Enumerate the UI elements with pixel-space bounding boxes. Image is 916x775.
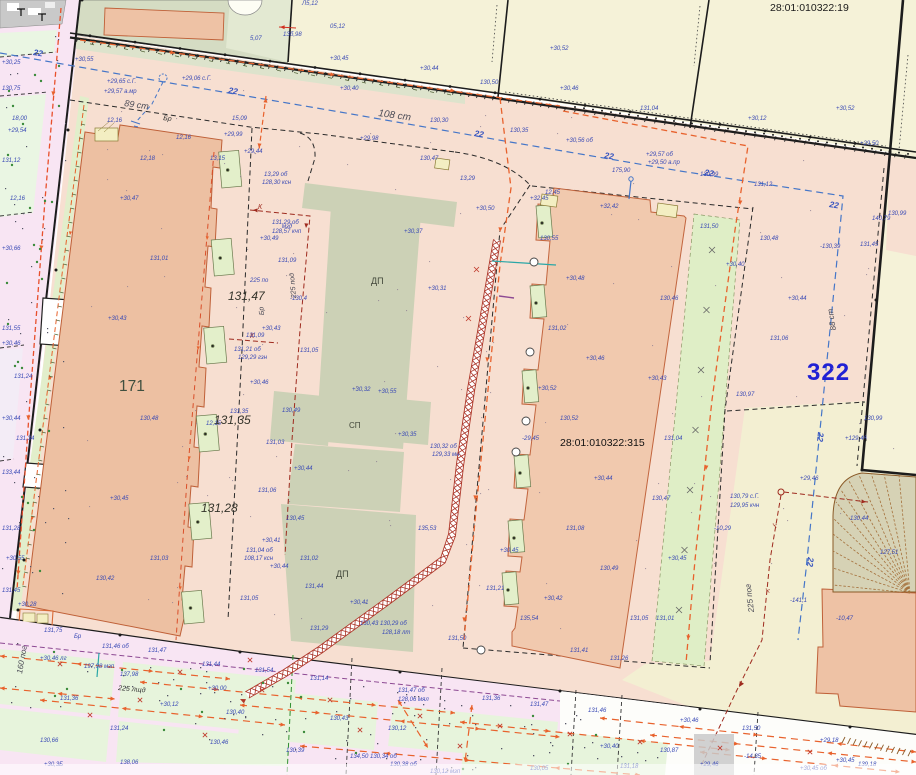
svg-text:+29,65 с.Г.: +29,65 с.Г.: [107, 79, 136, 85]
svg-text:22: 22: [227, 85, 239, 97]
svg-text:131,21 об: 131,21 об: [234, 347, 261, 353]
svg-text:130,66: 130,66: [40, 738, 59, 744]
svg-text:СП: СП: [349, 421, 361, 430]
svg-text:131,01: 131,01: [656, 616, 674, 622]
svg-text:131,03: 131,03: [150, 556, 169, 562]
svg-text:131,05: 131,05: [240, 596, 259, 602]
svg-text:131,36: 131,36: [482, 696, 501, 702]
svg-text:134,50 130,34 об: 134,50 130,34 об: [350, 754, 397, 760]
svg-text:+30,45: +30,45: [836, 758, 855, 764]
svg-text:175,90: 175,90: [612, 168, 631, 174]
svg-text:+30,44: +30,44: [294, 466, 313, 472]
svg-text:130,79 с.Г.: 130,79 с.Г.: [730, 494, 759, 500]
svg-text:12,18: 12,18: [140, 156, 156, 162]
svg-text:131,46 об: 131,46 об: [102, 644, 129, 650]
svg-text:+30,44: +30,44: [420, 66, 439, 72]
svg-text:171: 171: [119, 378, 145, 395]
svg-text:129,33 мн: 129,33 мн: [432, 452, 460, 458]
svg-text:130,44: 130,44: [850, 516, 869, 522]
svg-text:+30,40: +30,40: [726, 262, 745, 268]
svg-text:130,35: 130,35: [510, 128, 529, 134]
svg-text:-130,4: -130,4: [290, 296, 308, 302]
svg-text:+29,44: +29,44: [244, 149, 263, 155]
svg-text:131,24: 131,24: [110, 726, 129, 732]
svg-text:+30,52: +30,52: [836, 106, 855, 112]
svg-text:-14,35: -14,35: [744, 754, 762, 760]
svg-text:+30,46: +30,46: [2, 341, 21, 347]
svg-text:+30,47: +30,47: [120, 196, 139, 202]
svg-text:1Зб,98: 1Зб,98: [283, 32, 302, 38]
svg-text:131,12: 131,12: [2, 158, 21, 164]
svg-text:5,07: 5,07: [250, 36, 262, 42]
svg-text:130,87: 130,87: [660, 748, 679, 754]
svg-text:+30,40: +30,40: [600, 744, 619, 750]
svg-text:12,16: 12,16: [10, 196, 26, 202]
svg-text:+29,50: +29,50: [860, 141, 879, 147]
svg-text:131,46: 131,46: [588, 708, 607, 714]
svg-text:130,99: 130,99: [864, 416, 883, 422]
svg-text:+30,52: +30,52: [550, 46, 569, 52]
svg-text:+30,49: +30,49: [260, 236, 279, 242]
svg-text:+30,37: +30,37: [404, 229, 423, 235]
svg-text:130,55: 130,55: [540, 236, 559, 242]
svg-text:197,98 мзп: 197,98 мзп: [84, 664, 115, 670]
svg-text:+30,56 об: +30,56 об: [566, 138, 594, 144]
svg-text:130,48: 130,48: [140, 416, 159, 422]
svg-text:129,29 гзн: 129,29 гзн: [238, 355, 268, 361]
svg-text:28:01:010322:19: 28:01:010322:19: [770, 2, 849, 14]
svg-text:130,99: 130,99: [700, 172, 719, 178]
svg-text:+30,55: +30,55: [75, 57, 94, 63]
svg-text:+30,43: +30,43: [648, 376, 667, 382]
svg-text:131,28: 131,28: [201, 501, 238, 515]
svg-text:131,34: 131,34: [16, 436, 35, 442]
svg-text:131,54: 131,54: [255, 668, 274, 674]
svg-text:131,47: 131,47: [148, 648, 167, 654]
svg-text:+32,45: +32,45: [530, 196, 549, 202]
svg-text:+30,44: +30,44: [2, 416, 21, 422]
svg-text:131,50: 131,50: [742, 726, 761, 732]
svg-text:+30,55: +30,55: [378, 389, 397, 395]
svg-text:+30,66: +30,66: [2, 246, 21, 252]
svg-text:131,47: 131,47: [228, 289, 266, 303]
svg-text:Бр: Бр: [74, 634, 82, 640]
svg-text:131,21: 131,21: [486, 586, 504, 592]
svg-text:131,12: 131,12: [754, 182, 773, 188]
svg-text:131,50: 131,50: [700, 224, 719, 230]
svg-text:131,04: 131,04: [664, 436, 683, 442]
svg-text:130,32 об: 130,32 об: [430, 444, 457, 450]
svg-text:131,08: 131,08: [566, 526, 585, 532]
svg-text:130,43: 130,43: [330, 716, 349, 722]
svg-text:+30,32: +30,32: [352, 387, 371, 393]
svg-text:130,43 130,29 об: 130,43 130,29 об: [360, 621, 407, 627]
svg-text:+30,00: +30,00: [208, 686, 227, 692]
svg-text:Бр: Бр: [258, 306, 266, 315]
svg-text:130,40: 130,40: [226, 710, 245, 716]
svg-text:+30,45: +30,45: [668, 556, 687, 562]
svg-text:131,09: 131,09: [278, 258, 297, 264]
svg-text:+30,44: +30,44: [270, 564, 289, 570]
svg-text:13,29: 13,29: [460, 176, 476, 182]
svg-text:130,49: 130,49: [282, 408, 301, 414]
svg-text:+30,55: +30,55: [6, 556, 25, 562]
svg-text:+30,46: +30,46: [250, 380, 269, 386]
svg-text:131,41: 131,41: [570, 648, 588, 654]
svg-text:+30,41: +30,41: [262, 538, 281, 544]
svg-text:+29,57 а.мр: +29,57 а.мр: [104, 89, 137, 95]
svg-text:131,24: 131,24: [14, 374, 33, 380]
svg-text:+29,06 с.Г.: +29,06 с.Г.: [182, 76, 211, 82]
svg-text:130,52: 130,52: [560, 416, 579, 422]
svg-text:130,49: 130,49: [600, 566, 619, 572]
svg-text:131,06: 131,06: [258, 488, 277, 494]
svg-text:+30,25: +30,25: [2, 60, 21, 66]
svg-text:131,05: 131,05: [300, 348, 319, 354]
svg-text:22: 22: [32, 47, 44, 59]
svg-text:22: 22: [828, 199, 840, 211]
svg-text:+30,52: +30,52: [538, 386, 557, 392]
svg-text:131,09: 131,09: [246, 333, 265, 339]
svg-text:131,47 об: 131,47 об: [398, 688, 425, 694]
svg-text:130,45: 130,45: [286, 516, 305, 522]
svg-text:+29,46: +29,46: [800, 476, 819, 482]
svg-text:130,99: 130,99: [888, 211, 907, 217]
svg-text:-29,45: -29,45: [522, 436, 540, 442]
svg-text:130,30: 130,30: [430, 118, 449, 124]
svg-text:130,97: 130,97: [736, 392, 755, 398]
svg-text:131,06: 131,06: [770, 336, 789, 342]
svg-text:130,12: 130,12: [388, 726, 407, 732]
svg-text:+29,57 об: +29,57 об: [646, 152, 674, 158]
svg-text:-10,47: -10,47: [836, 616, 854, 622]
svg-text:131,05: 131,05: [630, 616, 649, 622]
svg-text:135,53: 135,53: [418, 526, 437, 532]
svg-text:131,75: 131,75: [44, 628, 63, 634]
svg-text:+30,35: +30,35: [398, 432, 417, 438]
svg-text:131,44: 131,44: [305, 584, 324, 590]
svg-text:+30,45: +30,45: [330, 56, 349, 62]
svg-text:131,28: 131,28: [2, 526, 21, 532]
svg-text:131,45: 131,45: [2, 588, 21, 594]
svg-text:131,02: 131,02: [548, 326, 567, 332]
svg-text:+29,99: +29,99: [224, 132, 243, 138]
svg-text:131,35: 131,35: [230, 409, 249, 415]
svg-text:+30,43: +30,43: [262, 326, 281, 332]
svg-text:127,51: 127,51: [880, 550, 898, 556]
svg-text:18,00: 18,00: [12, 116, 28, 122]
svg-text:+30,31: +30,31: [428, 286, 447, 292]
svg-text:131,36: 131,36: [60, 696, 79, 702]
svg-text:ДП: ДП: [336, 569, 349, 579]
svg-text:130,48: 130,48: [760, 236, 779, 242]
svg-text:-10,29: -10,29: [714, 526, 732, 532]
svg-text:133,44: 133,44: [2, 470, 21, 476]
svg-text:+30,46: +30,46: [586, 356, 605, 362]
svg-text:130,39: 130,39: [286, 748, 305, 754]
svg-text:130,75: 130,75: [2, 86, 21, 92]
svg-text:131,47: 131,47: [530, 702, 549, 708]
svg-text:+29,50 а.пр: +29,50 а.пр: [648, 160, 680, 166]
svg-text:+30,48: +30,48: [566, 276, 585, 282]
svg-text:+30,45: +30,45: [110, 496, 129, 502]
svg-text:12,16: 12,16: [176, 135, 192, 141]
svg-text:+30,45: +30,45: [500, 548, 519, 554]
svg-text:+30,44: +30,44: [788, 296, 807, 302]
svg-text:28:01:010322:315: 28:01:010322:315: [560, 437, 645, 449]
svg-text:+30,50: +30,50: [476, 206, 495, 212]
svg-text:131,29: 131,29: [310, 626, 329, 632]
svg-text:137,98: 137,98: [120, 672, 139, 678]
svg-text:+30,12: +30,12: [748, 116, 767, 122]
svg-text:135,54: 135,54: [520, 616, 539, 622]
svg-text:131,26: 131,26: [610, 656, 629, 662]
svg-text:+30,44: +30,44: [594, 476, 613, 482]
svg-text:13,29 об: 13,29 об: [264, 172, 288, 178]
svg-text:225 по: 225 по: [249, 278, 269, 284]
svg-text:130,50: 130,50: [480, 80, 499, 86]
svg-text:12,45: 12,45: [545, 190, 561, 196]
svg-text:130,46: 130,46: [210, 740, 229, 746]
svg-text:+32,42: +32,42: [600, 204, 619, 210]
svg-text:+30,46: +30,46: [680, 718, 699, 724]
svg-text:22: 22: [603, 150, 615, 162]
svg-text:22: 22: [815, 431, 826, 443]
svg-text:131,04 об: 131,04 об: [246, 548, 273, 554]
svg-text:12,15: 12,15: [206, 421, 222, 427]
svg-text:12,16: 12,16: [107, 118, 123, 124]
svg-text:131,14: 131,14: [310, 676, 329, 682]
svg-text:130,47: 130,47: [420, 156, 439, 162]
svg-text:131,45: 131,45: [860, 242, 879, 248]
svg-text:-141,1: -141,1: [790, 598, 807, 604]
svg-text:13,15: 13,15: [210, 156, 226, 162]
svg-text:05,12: 05,12: [330, 24, 346, 30]
svg-text:131,04: 131,04: [640, 106, 659, 112]
svg-text:128,06 мял: 128,06 мял: [398, 697, 429, 703]
svg-text:-130,39: -130,39: [820, 244, 841, 250]
svg-text:131,44: 131,44: [202, 662, 221, 668]
svg-text:+29,98: +29,98: [360, 136, 379, 142]
svg-text:мзд: мзд: [282, 224, 293, 230]
svg-text:Л5,12: Л5,12: [301, 1, 318, 7]
svg-text:130,47: 130,47: [652, 496, 671, 502]
svg-text:22: 22: [473, 128, 485, 140]
svg-text:+29,18: +29,18: [820, 738, 839, 744]
svg-text:128,18 лт: 128,18 лт: [382, 630, 410, 636]
svg-text:+29,54: +29,54: [8, 128, 27, 134]
svg-text:108,17 ксн: 108,17 ксн: [244, 556, 274, 562]
svg-text:131,02: 131,02: [300, 556, 319, 562]
svg-text:+30,40: +30,40: [340, 86, 359, 92]
svg-text:+30,46 лг: +30,46 лг: [40, 656, 67, 662]
svg-text:+30,46: +30,46: [560, 86, 579, 92]
svg-text:+30,43: +30,43: [108, 316, 127, 322]
svg-text:+30,28: +30,28: [18, 602, 37, 608]
svg-text:15,09: 15,09: [232, 116, 248, 122]
svg-text:Бр: Бр: [163, 115, 172, 123]
svg-text:131,55: 131,55: [2, 326, 21, 332]
svg-text:322: 322: [807, 359, 850, 386]
svg-text:+30,42: +30,42: [544, 596, 563, 602]
svg-text:129,95 кчн: 129,95 кчн: [730, 503, 760, 509]
svg-text:131,03: 131,03: [266, 440, 285, 446]
svg-text:130,42: 130,42: [96, 576, 115, 582]
svg-text:128,30 ксн: 128,30 ксн: [262, 180, 292, 186]
svg-text:+30,12: +30,12: [160, 702, 179, 708]
svg-text:22: 22: [805, 556, 816, 568]
svg-text:131,50: 131,50: [448, 636, 467, 642]
svg-text:131,01: 131,01: [150, 256, 168, 262]
svg-text:130,46: 130,46: [660, 296, 679, 302]
svg-text:ДП: ДП: [371, 276, 384, 286]
